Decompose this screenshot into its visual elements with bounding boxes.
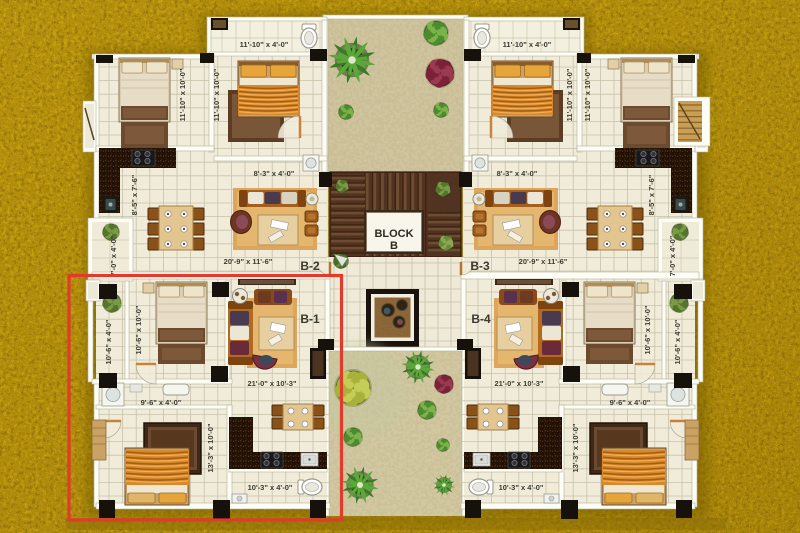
svg-text:9'-6" x 4'-0": 9'-6" x 4'-0" bbox=[610, 398, 651, 407]
svg-text:BLOCK: BLOCK bbox=[374, 228, 413, 240]
svg-text:B-3: B-3 bbox=[470, 259, 490, 273]
svg-text:B-2: B-2 bbox=[300, 259, 320, 273]
svg-text:8'-5" x 7'-6": 8'-5" x 7'-6" bbox=[130, 174, 139, 215]
svg-text:B: B bbox=[390, 240, 398, 252]
svg-text:9'-6" x 4'-0": 9'-6" x 4'-0" bbox=[141, 398, 182, 407]
svg-text:8'-3" x 4'-0": 8'-3" x 4'-0" bbox=[254, 169, 295, 178]
svg-text:7'-0" x 4'-0": 7'-0" x 4'-0" bbox=[668, 235, 677, 276]
svg-text:10'-6" x 10'-0": 10'-6" x 10'-0" bbox=[643, 305, 652, 354]
svg-text:11'-10" x 10'-0": 11'-10" x 10'-0" bbox=[178, 68, 187, 121]
svg-text:B-4: B-4 bbox=[471, 312, 491, 326]
svg-text:11'-10" x 10'-0": 11'-10" x 10'-0" bbox=[565, 68, 574, 121]
svg-text:10'-6" x 4'-0": 10'-6" x 4'-0" bbox=[673, 319, 682, 364]
svg-text:11'-10" x 10'-0": 11'-10" x 10'-0" bbox=[583, 68, 592, 121]
svg-text:10'-6" x 10'-0": 10'-6" x 10'-0" bbox=[134, 305, 143, 354]
svg-text:8'-5" x 7'-6": 8'-5" x 7'-6" bbox=[647, 174, 656, 215]
svg-text:20'-9" x 11'-6": 20'-9" x 11'-6" bbox=[519, 257, 568, 266]
svg-text:21'-0" x 10'-3": 21'-0" x 10'-3" bbox=[247, 379, 296, 388]
svg-text:11'-10" x 4'-0": 11'-10" x 4'-0" bbox=[503, 40, 552, 49]
svg-text:11'-10" x 10'-0": 11'-10" x 10'-0" bbox=[212, 68, 221, 121]
svg-text:20'-9" x 11'-6": 20'-9" x 11'-6" bbox=[224, 257, 273, 266]
svg-text:10'-3" x 4'-0": 10'-3" x 4'-0" bbox=[248, 483, 293, 492]
svg-text:8'-3" x 4'-0": 8'-3" x 4'-0" bbox=[497, 169, 538, 178]
svg-text:21'-0" x 10'-3": 21'-0" x 10'-3" bbox=[494, 379, 543, 388]
svg-text:10'-3" x 4'-0": 10'-3" x 4'-0" bbox=[499, 483, 544, 492]
svg-text:13'-3" x 10'-0": 13'-3" x 10'-0" bbox=[571, 423, 580, 472]
svg-text:10'-6" x 4'-0": 10'-6" x 4'-0" bbox=[104, 319, 113, 364]
svg-text:B-1: B-1 bbox=[300, 312, 320, 326]
svg-text:7'-0" x 4'-0": 7'-0" x 4'-0" bbox=[109, 235, 118, 276]
svg-text:11'-10" x 4'-0": 11'-10" x 4'-0" bbox=[240, 40, 289, 49]
svg-text:13'-3" x 10'-0": 13'-3" x 10'-0" bbox=[206, 423, 215, 472]
